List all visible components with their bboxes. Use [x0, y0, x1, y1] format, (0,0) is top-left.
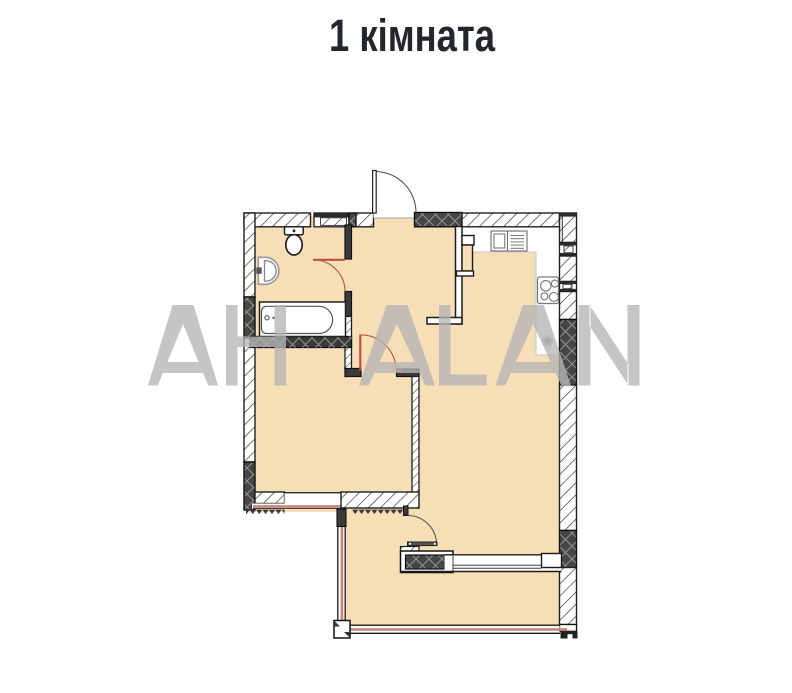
svg-text:1 кімната: 1 кімната: [329, 10, 496, 61]
